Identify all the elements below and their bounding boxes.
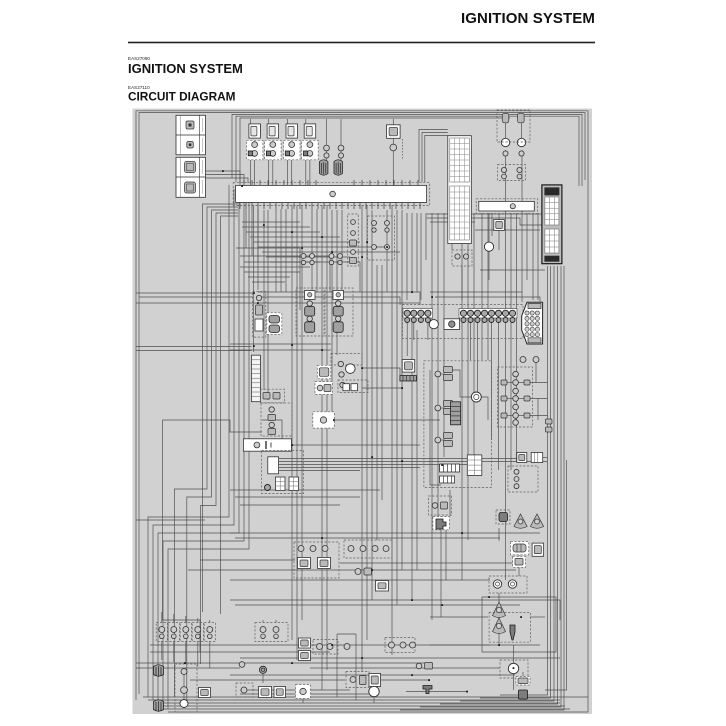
svg-text:IGNITION SYSTEM: IGNITION SYSTEM bbox=[128, 61, 243, 76]
svg-text:IGNITION SYSTEM: IGNITION SYSTEM bbox=[461, 10, 595, 27]
svg-text:CIRCUIT DIAGRAM: CIRCUIT DIAGRAM bbox=[128, 90, 236, 104]
